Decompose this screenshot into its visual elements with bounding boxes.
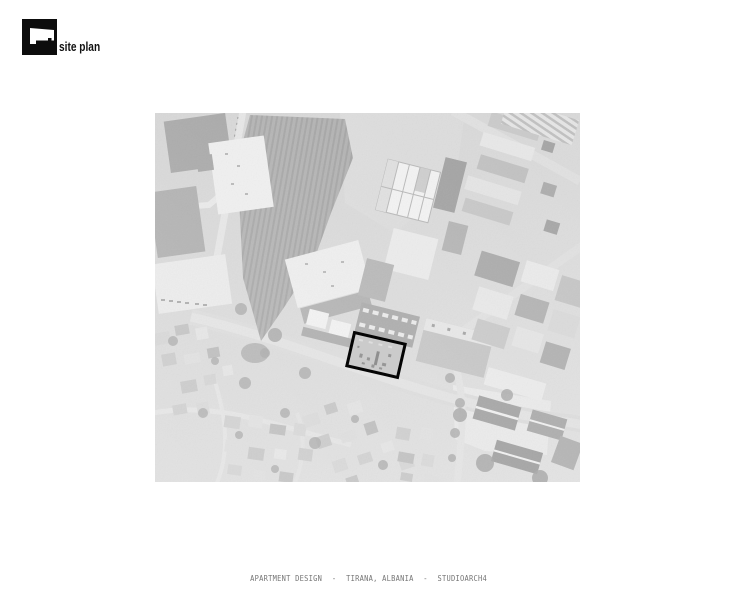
presentation-page: site plan <box>0 0 737 595</box>
logo-block: site plan <box>22 19 57 55</box>
caption-studio: STUDIOARCH4 <box>437 574 487 583</box>
footer: APARTMENT DESIGN - TIRANA, ALBANIA - STU… <box>0 570 737 586</box>
caption-separator: - <box>332 574 337 583</box>
caption-project: APARTMENT DESIGN <box>250 574 322 583</box>
footer-caption: APARTMENT DESIGN - TIRANA, ALBANIA - STU… <box>250 574 487 583</box>
aerial-photo-canvas <box>155 113 580 482</box>
site-aerial-map <box>155 113 580 482</box>
caption-separator: - <box>423 574 428 583</box>
building-footprint-icon <box>22 19 57 55</box>
caption-location: TIRANA, ALBANIA <box>346 574 414 583</box>
page-title: site plan <box>59 39 100 54</box>
